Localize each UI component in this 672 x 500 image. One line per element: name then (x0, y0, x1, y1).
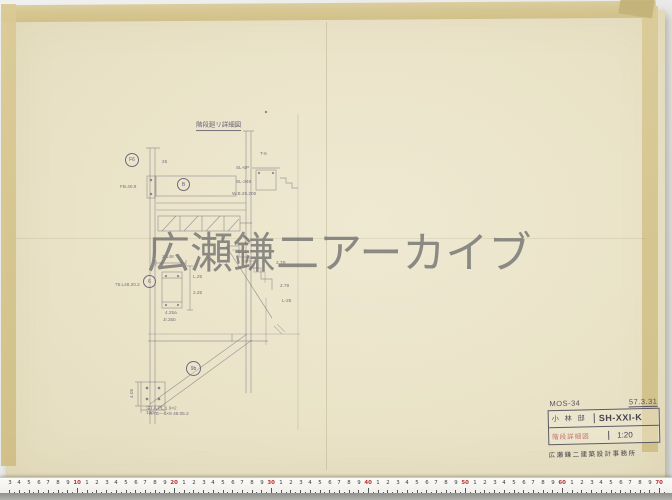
dim-jr25b: Jr.25b (163, 318, 176, 323)
span-element: F6 (129, 157, 135, 163)
circle-element (177, 304, 179, 306)
ruler-digit: 6 (328, 479, 331, 485)
ruler-decade-label: 30 (267, 479, 275, 485)
ruler-digit: 2 (483, 479, 486, 485)
ruler-digit: 8 (250, 479, 253, 485)
dim-fb: FB.40.9 (120, 185, 136, 190)
span-element: B (182, 182, 185, 188)
scan-stage: 階段廻リ詳細図 F6 B 6 9b 25 FB.40.9 T-6 SL-6P S… (0, 0, 672, 500)
project-code: MOS-34 (549, 399, 580, 410)
ruler-decade-label: 50 (461, 479, 469, 485)
dim-wb: W.B.25.200 (232, 192, 256, 197)
ruler-digit: 8 (541, 479, 544, 485)
ruler-digit: 7 (144, 479, 147, 485)
dim-225: 2.25 (193, 291, 202, 296)
dim-405: 4.05 (130, 389, 135, 398)
ruler-digit: 7 (47, 479, 50, 485)
ruler-digit: 7 (435, 479, 438, 485)
measuring-ruler: 3456789101234567892012345678930123456789… (0, 477, 672, 494)
ruler-digit: 5 (512, 479, 515, 485)
ruler-digit: 4 (502, 479, 505, 485)
client-name: 小 林 邸 (549, 413, 594, 424)
ruler-digit: 7 (532, 479, 535, 485)
circle-element (146, 398, 148, 400)
ruler-decade-label: 60 (558, 479, 566, 485)
ruler-digit: 2 (95, 479, 98, 485)
ruler-decade-label: 70 (655, 479, 663, 485)
ruler-digit: 5 (318, 479, 321, 485)
ruler-digit: 5 (124, 479, 127, 485)
drawing-date: 57.3.31 (629, 397, 658, 408)
path-element (162, 278, 182, 302)
ruler-digit: 1 (85, 479, 88, 485)
beam-section-upper (156, 176, 236, 196)
dim-col: 75.L48.20.2 (115, 283, 140, 288)
dim-25: 25 (162, 160, 167, 165)
circle-element (258, 172, 260, 174)
ruler-digit: 5 (609, 479, 612, 485)
ruler-digit: 2 (386, 479, 389, 485)
ruler-digit: 8 (153, 479, 156, 485)
ruler-digit: 7 (629, 479, 632, 485)
path-element (148, 334, 268, 342)
ruler-digit: 3 (590, 479, 593, 485)
ruler-digit: 2 (580, 479, 583, 485)
ruler-digit: 6 (425, 479, 428, 485)
path-element (156, 203, 246, 210)
title-block-box: 小 林 邸 SH-XXI-K 階段詳細図 1:20 (548, 408, 661, 446)
circle-element (165, 304, 167, 306)
ruler-digit: 8 (56, 479, 59, 485)
dim-425a: 4.25a (165, 311, 177, 316)
ruler-digit: 4 (114, 479, 117, 485)
archive-watermark: 広瀬鎌二アーカイブ (147, 219, 531, 281)
ruler-digit: 6 (134, 479, 137, 485)
mark-bubble-f6: F6 (125, 153, 139, 167)
red-stamp-text: 階段詳細図 (549, 430, 608, 441)
ruler-digit: 6 (231, 479, 234, 485)
ruler-digit: 3 (493, 479, 496, 485)
ruler-digit: 5 (27, 479, 30, 485)
ruler-digit: 3 (8, 479, 11, 485)
ruler-digit: 8 (347, 479, 350, 485)
dim-l-25: L-25 (282, 299, 291, 304)
ruler-digit: 2 (192, 479, 195, 485)
ruler-digit: 3 (396, 479, 399, 485)
ruler-digit: 5 (415, 479, 418, 485)
note-line-2: A.7E—5×9 48.05.2 (149, 412, 189, 417)
circle-element (150, 193, 152, 195)
ruler-digit: 3 (202, 479, 205, 485)
ruler-digit: 1 (279, 479, 282, 485)
ruler-digit: 8 (444, 479, 447, 485)
note-line-1: 注) A.PL 1.9×2 (146, 404, 177, 411)
dim-sl348: SL-348 (236, 180, 251, 185)
circle-element (158, 387, 160, 389)
ruler-digit: 9 (357, 479, 360, 485)
ruler-digit: 3 (299, 479, 302, 485)
mark-bubble-b: B (177, 178, 190, 191)
ruler-decade-label: 10 (73, 479, 81, 485)
circle-element (150, 179, 152, 181)
ruler-digit: 7 (241, 479, 244, 485)
ruler-digit: 9 (260, 479, 263, 485)
ruler-digit: 6 (619, 479, 622, 485)
ruler-digit: 1 (570, 479, 573, 485)
ruler-digit: 6 (522, 479, 525, 485)
dim-278: 2.78 (280, 284, 289, 289)
step-flashing-small (280, 178, 298, 188)
ruler-digit: 9 (163, 479, 166, 485)
circle-element (265, 111, 267, 113)
mark-bubble-9b: 9b (186, 361, 201, 376)
ruler-decade-label: 40 (364, 479, 372, 485)
dim-sl6p: SL-6P (236, 166, 249, 171)
label-t6: T-6 (260, 152, 267, 157)
circle-element (158, 398, 160, 400)
series-number: SH-XXI-K (594, 412, 659, 423)
ruler-digit: 4 (308, 479, 311, 485)
ruler-digit: 5 (221, 479, 224, 485)
circle-element (272, 172, 274, 174)
ruler-digit: 7 (338, 479, 341, 485)
base-plate (141, 382, 165, 406)
ruler-digit: 4 (405, 479, 408, 485)
ruler-digit: 1 (182, 479, 185, 485)
ruler-digit: 8 (638, 479, 641, 485)
ruler-digit: 1 (473, 479, 476, 485)
scanner-edge-strip (0, 493, 672, 500)
ruler-digit: 6 (37, 479, 40, 485)
span-element: 9b (191, 366, 197, 372)
title-block: MOS-34 57.3.31 小 林 邸 SH-XXI-K 階段詳細図 1:20… (547, 397, 660, 460)
circle-element (146, 387, 148, 389)
ruler-digit: 4 (211, 479, 214, 485)
ruler-digit: 9 (454, 479, 457, 485)
ruler-digit: 4 (17, 479, 20, 485)
ruler-digit: 3 (105, 479, 108, 485)
path-element (274, 324, 285, 334)
ruler-digit: 9 (648, 479, 651, 485)
ruler-digit: 2 (289, 479, 292, 485)
ruler-digit: 9 (66, 479, 69, 485)
title-block-row-2: 階段詳細図 1:20 (549, 425, 659, 444)
ruler-digit: 4 (599, 479, 602, 485)
ruler-digit: 9 (551, 479, 554, 485)
drawing-scale: 1:20 (608, 429, 659, 439)
drawing-title: 階段廻リ詳細図 (196, 120, 241, 131)
ruler-decade-label: 20 (170, 479, 178, 485)
ruler-digit: 1 (376, 479, 379, 485)
